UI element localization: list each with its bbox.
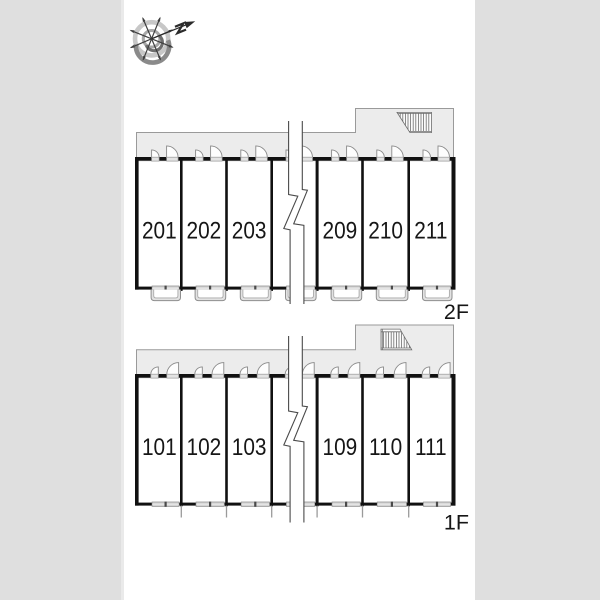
svg-text:110: 110: [369, 432, 402, 460]
svg-text:209: 209: [323, 216, 358, 244]
svg-text:203: 203: [232, 216, 267, 244]
svg-text:109: 109: [323, 432, 358, 460]
svg-text:201: 201: [142, 216, 177, 244]
svg-text:210: 210: [368, 216, 403, 244]
svg-text:101: 101: [142, 432, 177, 460]
svg-text:102: 102: [187, 432, 222, 460]
svg-text:211: 211: [414, 216, 447, 244]
svg-text:103: 103: [232, 432, 267, 460]
svg-text:202: 202: [187, 216, 222, 244]
svg-text:1F: 1F: [444, 511, 469, 535]
svg-text:2F: 2F: [444, 300, 469, 324]
svg-text:111: 111: [415, 432, 447, 460]
